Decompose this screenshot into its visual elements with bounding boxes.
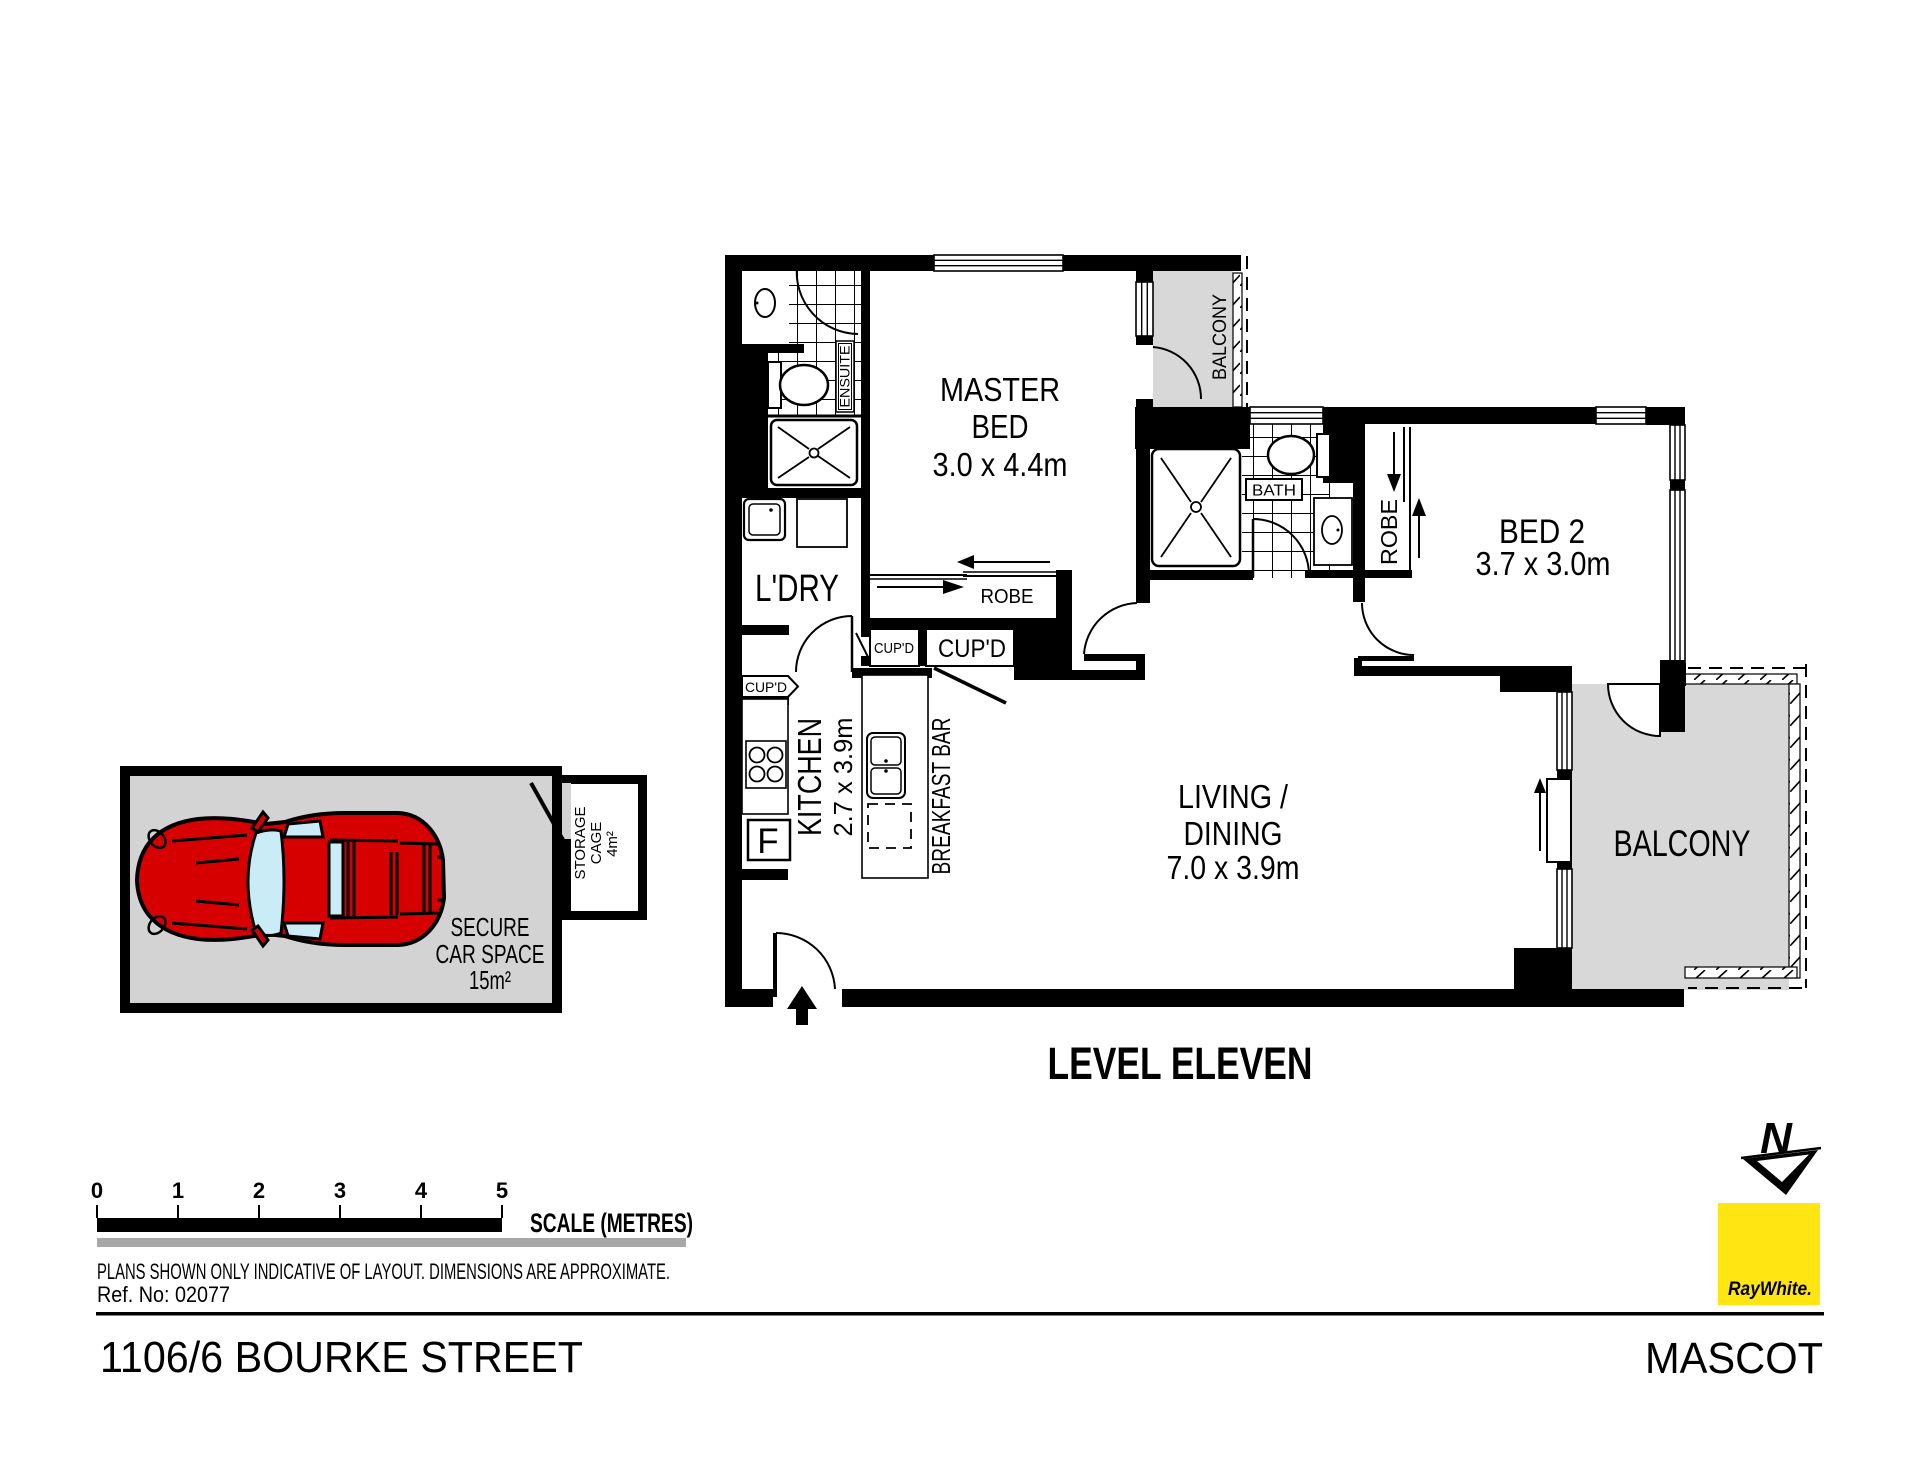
svg-text:KITCHEN: KITCHEN: [791, 718, 828, 836]
svg-text:3.0 x 4.4m: 3.0 x 4.4m: [933, 446, 1068, 483]
svg-text:CUP'D: CUP'D: [938, 635, 1006, 663]
svg-text:2.7 x 3.9m: 2.7 x 3.9m: [828, 718, 858, 837]
svg-text:1106/6 BOURKE STREET: 1106/6 BOURKE STREET: [100, 1333, 583, 1382]
svg-text:LIVING /: LIVING /: [1178, 778, 1289, 815]
svg-text:0: 0: [91, 1178, 103, 1203]
svg-text:ENSUITE: ENSUITE: [838, 346, 853, 408]
svg-text:STORAGE: STORAGE: [572, 806, 589, 879]
svg-text:SECURE: SECURE: [451, 912, 530, 942]
svg-text:BALCONY: BALCONY: [1210, 294, 1231, 380]
svg-text:PLANS SHOWN ONLY INDICATIVE OF: PLANS SHOWN ONLY INDICATIVE OF LAYOUT. D…: [97, 1259, 670, 1284]
svg-text:ROBE: ROBE: [981, 586, 1034, 608]
svg-text:RayWhite.: RayWhite.: [1728, 1279, 1812, 1300]
svg-text:7.0 x 3.9m: 7.0 x 3.9m: [1167, 849, 1300, 886]
svg-text:ROBE: ROBE: [1376, 499, 1402, 565]
svg-text:F: F: [757, 822, 778, 861]
svg-text:BED: BED: [972, 408, 1029, 445]
svg-text:3: 3: [334, 1178, 346, 1203]
svg-text:4m²: 4m²: [604, 831, 621, 857]
svg-text:SCALE (METRES): SCALE (METRES): [530, 1208, 693, 1238]
svg-text:4: 4: [415, 1178, 428, 1203]
svg-text:LEVEL ELEVEN: LEVEL ELEVEN: [1048, 1038, 1313, 1089]
svg-text:Ref. No: 02077: Ref. No: 02077: [97, 1282, 230, 1307]
svg-text:CUP'D: CUP'D: [745, 679, 787, 695]
svg-text:BREAKFAST BAR: BREAKFAST BAR: [926, 718, 956, 875]
svg-text:BATH: BATH: [1252, 483, 1296, 500]
svg-text:BALCONY: BALCONY: [1614, 823, 1751, 864]
svg-text:5: 5: [496, 1178, 508, 1203]
svg-text:DINING: DINING: [1184, 815, 1283, 852]
svg-text:3.7 x 3.0m: 3.7 x 3.0m: [1476, 545, 1611, 582]
svg-text:CAGE: CAGE: [588, 822, 605, 865]
svg-text:15m²: 15m²: [469, 965, 511, 995]
svg-text:CUP'D: CUP'D: [874, 640, 914, 657]
svg-text:MASCOT: MASCOT: [1645, 1334, 1823, 1383]
svg-text:L'DRY: L'DRY: [755, 568, 839, 610]
svg-text:1: 1: [172, 1178, 184, 1203]
svg-text:2: 2: [253, 1178, 265, 1203]
svg-text:MASTER: MASTER: [940, 371, 1060, 408]
